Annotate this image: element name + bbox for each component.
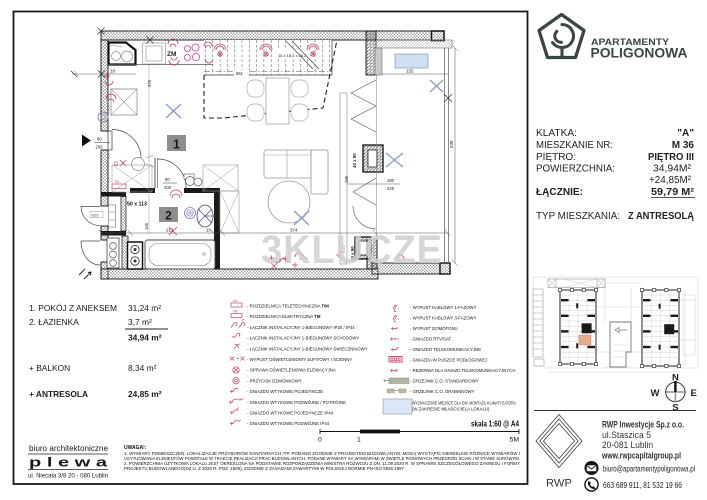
svg-text:N: N: [672, 373, 679, 384]
svg-text:90: 90: [97, 137, 102, 142]
svg-text:- GNIAZDA W PUSZCE PODŁOGOWEJ: - GNIAZDA W PUSZCE PODŁOGOWEJ: [410, 358, 487, 363]
svg-text:M 36: M 36: [672, 140, 695, 151]
svg-text:+ BALKON: + BALKON: [29, 363, 70, 373]
svg-text:50 x 113: 50 x 113: [127, 202, 147, 208]
svg-text:200: 200: [164, 185, 172, 190]
svg-text:TM: TM: [233, 310, 238, 314]
svg-text:ZM: ZM: [167, 51, 176, 58]
svg-text:31,24 m²: 31,24 m²: [128, 303, 161, 313]
svg-text:3: 3: [398, 317, 400, 321]
svg-text:- ROZDZIELNICA TELETECHNICZNA: - ROZDZIELNICA TELETECHNICZNA TIM: [247, 304, 329, 309]
svg-text:POWIERZCHNIA:: POWIERZCHNIA:: [536, 164, 615, 175]
svg-text:- ŁĄCZNIK INSTALACYJNY 1-BIEGU: - ŁĄCZNIK INSTALACYJNY 1-BIEGUNOWY SCHOD…: [247, 336, 359, 341]
svg-text:- GNIAZDO TELEKOMUNIKACYJNE: - GNIAZDO TELEKOMUNIKACYJNE: [410, 347, 481, 352]
svg-text:+24,85M²: +24,85M²: [649, 175, 692, 186]
svg-text:www.rwpcapitalgroup.pl: www.rwpcapitalgroup.pl: [601, 451, 681, 461]
svg-text:225: 225: [387, 186, 395, 191]
svg-text:2: 2: [165, 209, 172, 223]
svg-text:80: 80: [165, 177, 170, 182]
svg-text:skala 1:60 @ A4: skala 1:60 @ A4: [471, 420, 519, 429]
svg-text:200: 200: [96, 145, 104, 150]
svg-text:- WYPUST KABLOWY 3-FAZOWY: - WYPUST KABLOWY 3-FAZOWY: [410, 316, 477, 321]
svg-text:TIM: TIM: [233, 299, 238, 303]
svg-text:S: S: [672, 403, 678, 414]
svg-text:p l e w a: p l e w a: [29, 456, 109, 470]
svg-text:+ ANTRESOLA: + ANTRESOLA: [29, 389, 88, 399]
svg-text:- GNIAZDO WTYKOWE POJEDYNCZE: - GNIAZDO WTYKOWE POJEDYNCZE: [247, 389, 323, 394]
svg-text:ul. Niecała 3/8 20 - 080 Lubl: ul. Niecała 3/8 20 - 080 Lublin: [28, 473, 109, 480]
svg-text:biuro architektoniczne: biuro architektoniczne: [29, 444, 109, 453]
svg-text:E66: E66: [92, 213, 100, 218]
svg-text:- WYPUST OŚWIETLENIOWY SUFITOW: - WYPUST OŚWIETLENIOWY SUFITOWY I ŚCIENN…: [247, 357, 352, 362]
svg-text:ŁĄCZNIE:: ŁĄCZNIE:: [536, 187, 583, 198]
svg-text:0: 0: [318, 437, 322, 444]
svg-text:- OPRAWA OŚWIETLENIOWA ELEWACY: - OPRAWA OŚWIETLENIOWA ELEWACYJNA: [247, 368, 336, 373]
svg-text:59,79 M²: 59,79 M²: [651, 187, 695, 198]
svg-text:651: 651: [236, 71, 244, 76]
svg-text:RWP Inwestycje Sp.z o.o.: RWP Inwestycje Sp.z o.o.: [602, 420, 684, 430]
svg-text:18: 18: [110, 69, 116, 74]
svg-text:538: 538: [449, 140, 454, 148]
svg-text:1. POKÓJ Z ANEKSEM: 1. POKÓJ Z ANEKSEM: [29, 303, 117, 313]
svg-text:- GRZEJNIK C.O. DRABINKOWY: - GRZEJNIK C.O. DRABINKOWY: [410, 389, 475, 394]
svg-text:"A": "A": [677, 128, 694, 139]
svg-text:165: 165: [144, 222, 149, 230]
svg-text:1: 1: [398, 307, 400, 311]
svg-text:Z ANTRESOLĄ: Z ANTRESOLĄ: [628, 211, 694, 222]
svg-text:KLATKA:: KLATKA:: [536, 128, 577, 139]
svg-text:3,7 m²: 3,7 m²: [128, 317, 152, 327]
svg-text:- WYZNACZONE MIEJSCE DLA EW. M: - WYZNACZONE MIEJSCE DLA EW. MONTAŻU KLI…: [410, 401, 516, 406]
svg-text:PIĘTRO III: PIĘTRO III: [648, 152, 694, 163]
svg-text:180: 180: [387, 178, 395, 183]
svg-text:2. ŁAZIENKA: 2. ŁAZIENKA: [29, 317, 79, 327]
svg-text:TYP MIESZKANIA:: TYP MIESZKANIA:: [536, 211, 620, 222]
svg-text:(W ZAKRESIE WŁAŚCICIELA LOKALU: (W ZAKRESIE WŁAŚCICIELA LOKALU): [412, 407, 490, 412]
svg-text:20-081 Lublin: 20-081 Lublin: [602, 440, 653, 450]
svg-text:5M: 5M: [510, 437, 520, 444]
svg-text:PROJEKTU BUDOWLANEGO(DZ.U. Z 2: PROJEKTU BUDOWLANEGO(DZ.U. Z 2020 R. POZ…: [124, 466, 405, 471]
svg-text:- ŁĄCZNIK INSTALACYJNY 1-BIEGU: - ŁĄCZNIK INSTALACYJNY 1-BIEGUNOWY ŚWIEC…: [247, 346, 368, 351]
svg-text:- GNIAZDO RTV/SAT: - GNIAZDO RTV/SAT: [410, 337, 452, 342]
svg-text:MIESZKANIE NR:: MIESZKANIE NR:: [536, 140, 613, 151]
svg-text:1: 1: [357, 437, 361, 444]
svg-text:- PRZYCISK DZWONKOWY: - PRZYCISK DZWONKOWY: [247, 378, 302, 383]
svg-text:- REZERWA DLA GNIAZD TELEKOMUN: - REZERWA DLA GNIAZD TELEKOMUNIKACYJNYCH: [410, 368, 515, 373]
svg-text:34,94M²: 34,94M²: [653, 164, 692, 175]
svg-text:ul.Staszica 5: ul.Staszica 5: [602, 430, 651, 440]
svg-text:biuro@apartamentypoligonowa.pl: biuro@apartamentypoligonowa.pl: [603, 464, 695, 474]
svg-text:155: 155: [406, 69, 414, 74]
svg-text:E: E: [691, 388, 697, 399]
svg-text:40 x 90: 40 x 90: [352, 153, 357, 168]
svg-text:24,85 m²: 24,85 m²: [128, 389, 162, 399]
svg-text:PIĘTRO:: PIĘTRO:: [536, 152, 576, 163]
svg-text:- WYPUST DOMOFONU: - WYPUST DOMOFONU: [410, 326, 458, 331]
svg-text:- GRZEJNIK C.O. STANDARDOWY: - GRZEJNIK C.O. STANDARDOWY: [410, 379, 479, 384]
svg-text:TM: TM: [114, 180, 119, 184]
svg-text:3KLUCZE: 3KLUCZE: [261, 228, 443, 272]
svg-text:376: 376: [147, 79, 152, 87]
svg-text:- ROZDZIELNICA ELEKTRYCZNA TM: - ROZDZIELNICA ELEKTRYCZNA TM: [247, 314, 321, 319]
svg-text:- GNIAZDO WTYKOWE POJEDYNCZE I: - GNIAZDO WTYKOWE POJEDYNCZE IP44: [247, 411, 334, 416]
svg-text:16 x 18,4 x 25,2: 16 x 18,4 x 25,2: [278, 53, 307, 58]
svg-text:- WYPUST KABLOWY 1-FAZOWY: - WYPUST KABLOWY 1-FAZOWY: [410, 305, 477, 310]
svg-text:663 689 911, 81 532 19 66: 663 689 911, 81 532 19 66: [603, 480, 682, 490]
svg-text:495: 495: [344, 175, 349, 183]
svg-text:1: 1: [173, 138, 180, 152]
svg-text:POLIGONOWA: POLIGONOWA: [591, 45, 688, 61]
svg-text:34,94 m²: 34,94 m²: [128, 333, 162, 343]
svg-text:- GNIAZDO WTYKOWE PODWÓJNE / P: - GNIAZDO WTYKOWE PODWÓJNE / POTRÓJNE: [247, 400, 346, 405]
svg-text:- ŁĄCZNIK INSTALACYJNY 1-BIEGU: - ŁĄCZNIK INSTALACYJNY 1-BIEGUNOWY IP20 …: [247, 325, 355, 330]
svg-text:8,34 m²: 8,34 m²: [128, 363, 157, 373]
svg-text:W: W: [651, 388, 660, 399]
svg-text:RWP: RWP: [546, 478, 572, 490]
svg-text:10: 10: [206, 228, 212, 233]
svg-text:- GNIAZDO WTYKOWE PODWÓJNE IP4: - GNIAZDO WTYKOWE PODWÓJNE IP44: [247, 421, 330, 426]
